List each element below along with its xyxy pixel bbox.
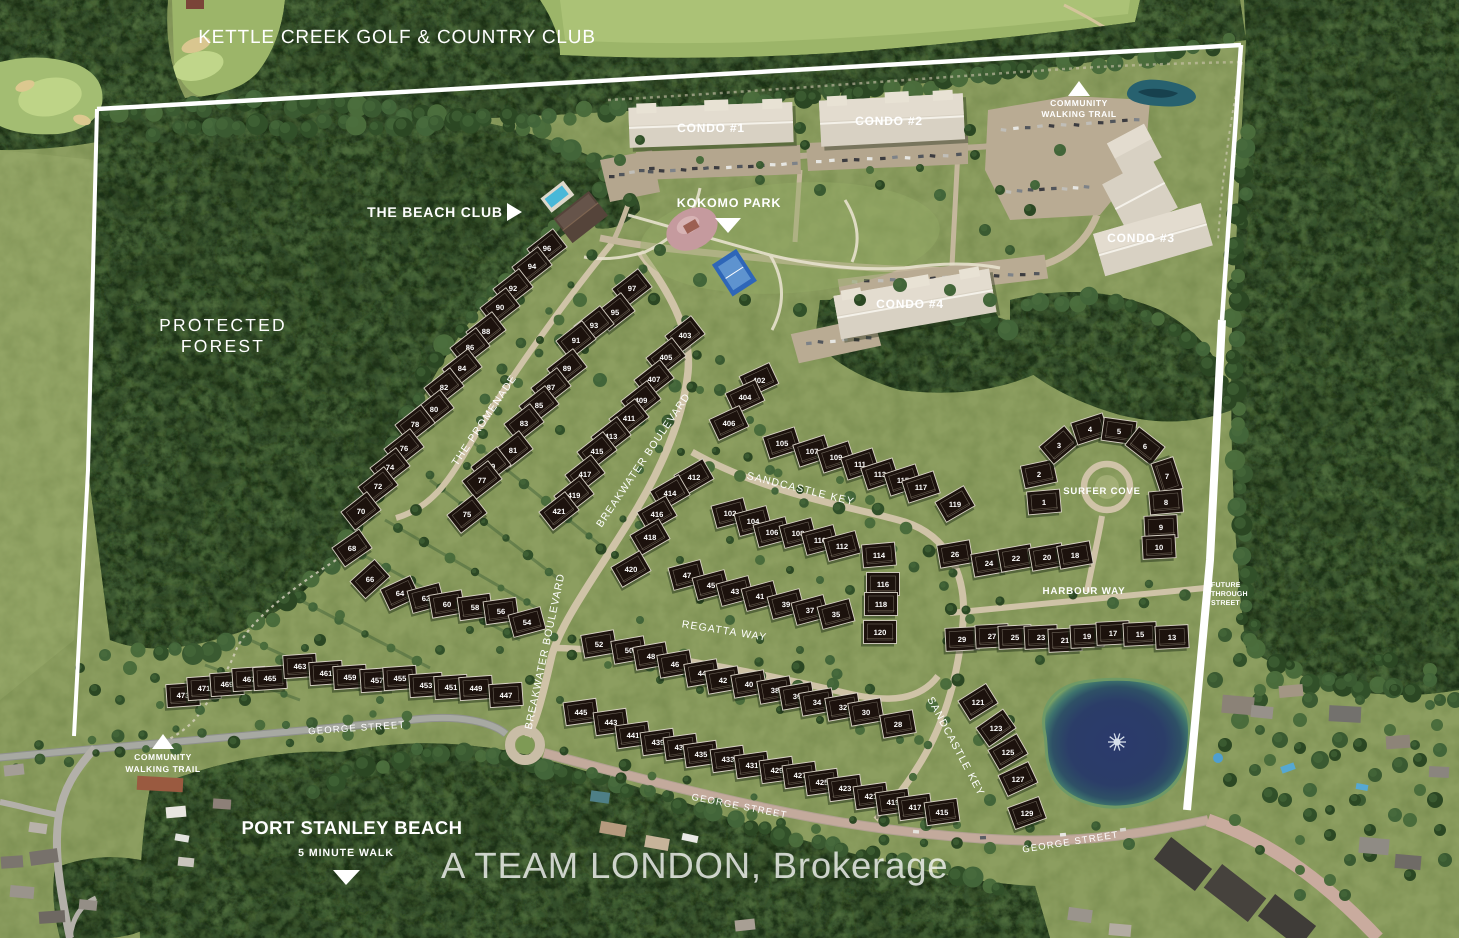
svg-text:CONDO #4: CONDO #4: [876, 297, 944, 311]
svg-text:WALKING TRAIL: WALKING TRAIL: [1041, 109, 1116, 119]
svg-text:17: 17: [1109, 629, 1117, 638]
svg-text:68: 68: [348, 544, 356, 553]
svg-text:64: 64: [396, 589, 405, 598]
svg-text:117: 117: [915, 483, 927, 492]
svg-text:29: 29: [958, 635, 966, 644]
svg-text:105: 105: [776, 439, 789, 448]
svg-text:13: 13: [1168, 633, 1176, 642]
svg-text:56: 56: [497, 607, 505, 616]
svg-text:81: 81: [509, 446, 518, 455]
svg-text:445: 445: [575, 708, 588, 717]
svg-text:423: 423: [839, 784, 852, 793]
svg-text:435: 435: [695, 750, 708, 759]
svg-text:415: 415: [591, 447, 604, 456]
svg-text:106: 106: [766, 528, 779, 537]
svg-text:THE BEACH CLUB: THE BEACH CLUB: [367, 204, 503, 220]
svg-text:416: 416: [651, 510, 664, 519]
svg-text:449: 449: [470, 684, 483, 693]
svg-text:28: 28: [894, 720, 902, 729]
svg-text:417: 417: [909, 803, 922, 812]
svg-text:76: 76: [400, 444, 408, 453]
svg-text:119: 119: [949, 500, 961, 509]
svg-text:20: 20: [1043, 553, 1051, 562]
svg-text:123: 123: [990, 724, 1003, 733]
svg-text:96: 96: [543, 244, 551, 253]
svg-text:121: 121: [972, 698, 985, 707]
svg-text:129: 129: [1021, 809, 1034, 818]
svg-text:37: 37: [806, 606, 814, 615]
svg-text:85: 85: [535, 401, 544, 410]
svg-text:A TEAM LONDON, Brokerage: A TEAM LONDON, Brokerage: [441, 845, 948, 886]
svg-text:89: 89: [563, 364, 571, 373]
svg-text:447: 447: [500, 691, 513, 700]
svg-text:94: 94: [528, 262, 537, 271]
svg-text:78: 78: [411, 420, 419, 429]
svg-text:403: 403: [679, 331, 692, 340]
svg-text:WALKING TRAIL: WALKING TRAIL: [125, 764, 200, 774]
svg-text:112: 112: [836, 542, 848, 551]
svg-text:451: 451: [445, 683, 458, 692]
svg-text:23: 23: [1037, 633, 1045, 642]
svg-text:48: 48: [647, 652, 655, 661]
svg-text:80: 80: [430, 405, 438, 414]
svg-text:KETTLE CREEK GOLF & COUNTRY CL: KETTLE CREEK GOLF & COUNTRY CLUB: [198, 27, 596, 48]
svg-text:FOREST: FOREST: [181, 336, 265, 356]
svg-text:30: 30: [862, 708, 870, 717]
svg-text:441: 441: [627, 731, 640, 740]
svg-text:SURFER COVE: SURFER COVE: [1063, 486, 1140, 497]
svg-text:CONDO #3: CONDO #3: [1107, 231, 1175, 245]
svg-text:45: 45: [707, 581, 716, 590]
svg-text:18: 18: [1071, 551, 1079, 560]
svg-text:35: 35: [832, 610, 841, 619]
svg-text:118: 118: [875, 600, 887, 609]
svg-text:84: 84: [458, 364, 467, 373]
svg-text:97: 97: [628, 284, 636, 293]
svg-text:26: 26: [951, 550, 959, 559]
svg-text:91: 91: [572, 336, 581, 345]
svg-text:42: 42: [719, 676, 727, 685]
svg-text:463: 463: [294, 662, 307, 671]
svg-text:19: 19: [1083, 632, 1091, 641]
svg-text:120: 120: [874, 628, 887, 637]
svg-text:6: 6: [1143, 442, 1147, 451]
svg-text:52: 52: [595, 640, 603, 649]
svg-text:405: 405: [660, 353, 673, 362]
svg-text:415: 415: [936, 808, 949, 817]
svg-text:412: 412: [688, 473, 701, 482]
svg-text:418: 418: [644, 533, 657, 542]
svg-text:47: 47: [683, 571, 691, 580]
svg-text:COMMUNITY: COMMUNITY: [134, 752, 192, 762]
svg-text:93: 93: [590, 321, 598, 330]
svg-text:406: 406: [723, 419, 736, 428]
svg-text:COMMUNITY: COMMUNITY: [1050, 98, 1108, 108]
svg-text:CONDO #1: CONDO #1: [677, 121, 745, 135]
svg-text:88: 88: [482, 327, 490, 336]
svg-text:PORT STANLEY BEACH: PORT STANLEY BEACH: [241, 817, 462, 838]
svg-text:77: 77: [478, 476, 486, 485]
svg-text:15: 15: [1136, 630, 1145, 639]
svg-text:54: 54: [523, 618, 532, 627]
svg-text:465: 465: [264, 674, 277, 683]
svg-text:404: 404: [739, 393, 752, 402]
svg-text:420: 420: [625, 565, 638, 574]
svg-text:34: 34: [813, 698, 822, 707]
svg-text:5 MINUTE WALK: 5 MINUTE WALK: [298, 847, 394, 859]
svg-text:83: 83: [520, 419, 528, 428]
svg-text:455: 455: [394, 674, 407, 683]
svg-text:60: 60: [443, 600, 451, 609]
svg-text:FUTURE: FUTURE: [1211, 582, 1241, 589]
svg-text:70: 70: [357, 507, 365, 516]
svg-text:9: 9: [1159, 523, 1163, 532]
svg-text:STREET: STREET: [1211, 600, 1240, 607]
svg-text:THROUGH: THROUGH: [1211, 591, 1248, 598]
svg-text:431: 431: [746, 761, 759, 770]
svg-text:24: 24: [985, 559, 994, 568]
svg-text:92: 92: [509, 284, 517, 293]
svg-text:95: 95: [611, 308, 620, 317]
svg-text:127: 127: [1012, 775, 1025, 784]
svg-text:2: 2: [1037, 470, 1041, 479]
svg-text:114: 114: [873, 551, 886, 560]
svg-text:459: 459: [344, 673, 357, 682]
svg-text:7: 7: [1165, 472, 1169, 481]
svg-text:90: 90: [496, 303, 504, 312]
svg-text:421: 421: [553, 507, 566, 516]
svg-text:CONDO #2: CONDO #2: [855, 114, 923, 128]
svg-text:66: 66: [366, 575, 374, 584]
svg-text:72: 72: [374, 482, 382, 491]
svg-text:407: 407: [648, 375, 661, 384]
svg-text:KOKOMO PARK: KOKOMO PARK: [677, 196, 781, 210]
svg-text:41: 41: [756, 592, 765, 601]
svg-text:453: 453: [420, 681, 433, 690]
svg-text:22: 22: [1012, 554, 1020, 563]
svg-text:58: 58: [471, 603, 479, 612]
svg-text:125: 125: [1002, 748, 1015, 757]
svg-text:46: 46: [671, 660, 679, 669]
svg-text:HARBOUR WAY: HARBOUR WAY: [1042, 586, 1125, 597]
svg-text:3: 3: [1057, 441, 1061, 450]
svg-text:411: 411: [623, 414, 636, 423]
svg-text:43: 43: [731, 587, 739, 596]
svg-text:25: 25: [1011, 633, 1020, 642]
svg-text:27: 27: [988, 632, 996, 641]
svg-text:75: 75: [463, 510, 472, 519]
svg-text:8: 8: [1164, 498, 1168, 507]
svg-text:10: 10: [1155, 543, 1163, 552]
svg-text:116: 116: [877, 580, 889, 589]
svg-text:40: 40: [745, 680, 753, 689]
svg-text:109: 109: [830, 453, 843, 462]
svg-text:39: 39: [782, 600, 790, 609]
svg-text:PROTECTED: PROTECTED: [159, 315, 287, 335]
